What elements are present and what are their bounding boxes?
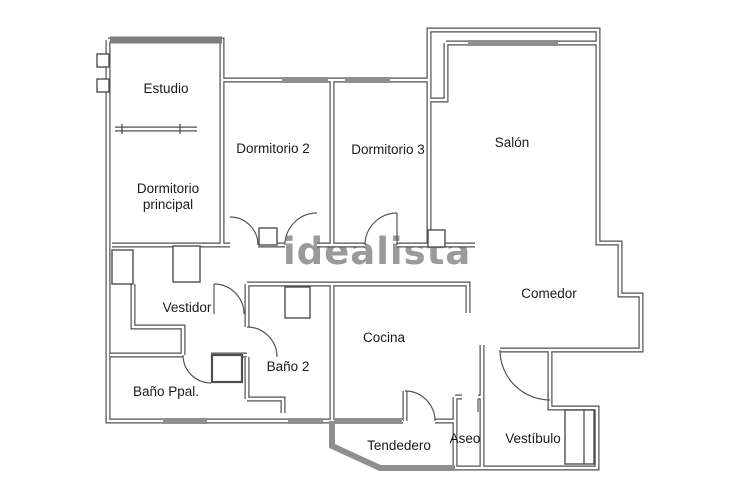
floorplan-drawing xyxy=(0,0,750,500)
room-label-dormitorio3: Dormitorio 3 xyxy=(351,142,425,158)
room-label-aseo: Aseo xyxy=(450,431,481,447)
vestidor-wardrobe xyxy=(112,250,133,284)
door-dormitorio2 xyxy=(285,213,317,245)
room-label-comedor: Comedor xyxy=(521,286,577,302)
room-label-tendedero: Tendedero xyxy=(367,438,431,454)
facade-tab-1 xyxy=(97,54,109,67)
door-tendedero xyxy=(405,391,435,421)
wall-pier-2 xyxy=(428,230,445,247)
door-bano2 xyxy=(247,327,277,357)
floorplan: idealista xyxy=(0,0,750,500)
room-label-principal-line2: principal xyxy=(137,197,199,213)
room-label-dormitorio2: Dormitorio 2 xyxy=(236,141,310,157)
room-label-principal-line1: Dormitorio xyxy=(137,181,199,197)
doors-layer xyxy=(183,213,550,421)
corridor-closet xyxy=(173,246,200,282)
facade-tab-2 xyxy=(97,79,109,92)
vestibulo-closet xyxy=(565,410,594,464)
door-bano-ppal xyxy=(183,355,211,383)
room-label-vestibulo: Vestíbulo xyxy=(505,431,561,447)
wall-pier-1 xyxy=(259,228,277,245)
door-entry-vestibulo xyxy=(500,350,550,400)
bano2-shower xyxy=(285,287,310,318)
room-label-estudio: Estudio xyxy=(143,81,188,97)
door-vestidor xyxy=(214,284,244,314)
bano-ppal-shower xyxy=(212,355,242,382)
fixtures-layer xyxy=(97,54,594,464)
door-dormitorio-principal xyxy=(230,217,258,245)
room-label-vestidor: Vestidor xyxy=(163,300,212,316)
room-label-bano2: Baño 2 xyxy=(267,359,310,375)
room-label-salon: Salón xyxy=(495,135,530,151)
room-label-bano-ppal: Baño Ppal. xyxy=(133,384,199,400)
room-label-cocina: Cocina xyxy=(363,330,405,346)
door-dormitorio3 xyxy=(365,213,397,245)
room-label-dormitorio-principal: Dormitorio principal xyxy=(137,181,199,213)
